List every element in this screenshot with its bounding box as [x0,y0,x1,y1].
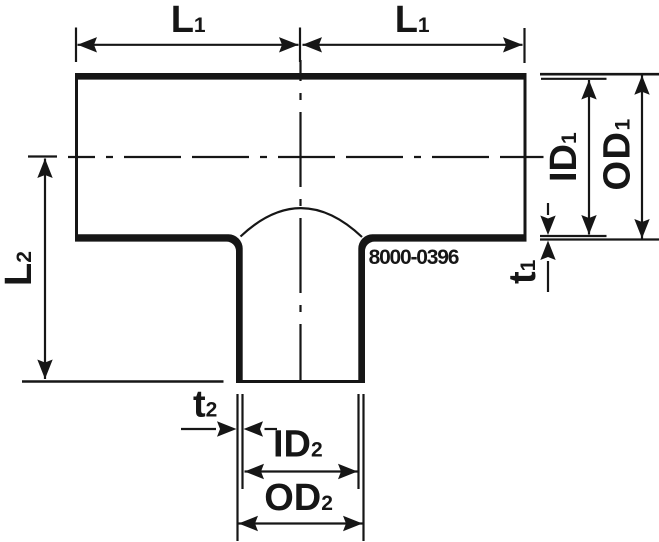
svg-text:t2: t2 [193,384,217,426]
svg-text:OD1: OD1 [597,117,639,190]
svg-text:ID1: ID1 [543,132,585,182]
svg-text:L1: L1 [395,0,430,41]
svg-text:L1: L1 [171,0,206,41]
svg-text:ID2: ID2 [273,424,323,466]
svg-text:OD2: OD2 [264,477,333,519]
svg-text:8000-0396: 8000-0396 [369,246,459,269]
svg-text:L2: L2 [0,251,40,286]
svg-text:t1: t1 [502,259,544,284]
